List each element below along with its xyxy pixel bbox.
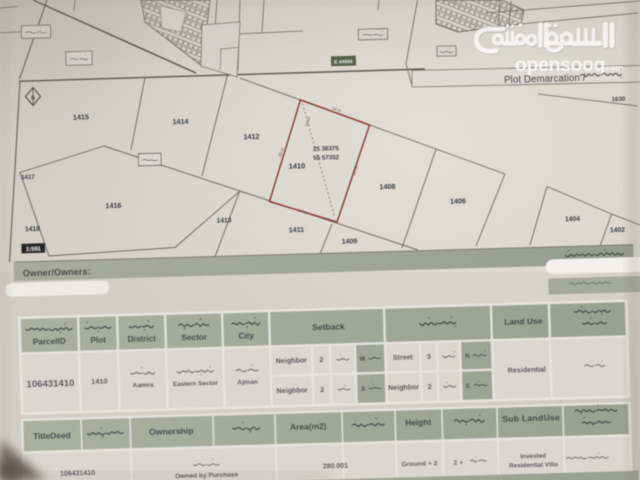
svg-text:1404: 1404 — [565, 216, 581, 223]
svg-text:1412: 1412 — [243, 132, 259, 141]
svg-text:1413: 1413 — [216, 217, 232, 224]
svg-text:55 57352: 55 57352 — [313, 154, 340, 162]
svg-text:1630: 1630 — [611, 96, 626, 103]
svg-text:1411: 1411 — [289, 227, 304, 234]
svg-text:1408: 1408 — [379, 182, 395, 191]
svg-text:1417: 1417 — [21, 174, 36, 181]
svg-text:1:591: 1:591 — [26, 247, 42, 253]
svg-text:1406: 1406 — [450, 196, 466, 205]
svg-text:1416: 1416 — [105, 201, 121, 210]
svg-text:25 38375: 25 38375 — [313, 145, 340, 153]
svg-text:1409: 1409 — [342, 238, 358, 245]
svg-text:1418: 1418 — [25, 226, 41, 233]
svg-text:1410: 1410 — [289, 161, 306, 170]
svg-text:1402: 1402 — [610, 227, 626, 234]
